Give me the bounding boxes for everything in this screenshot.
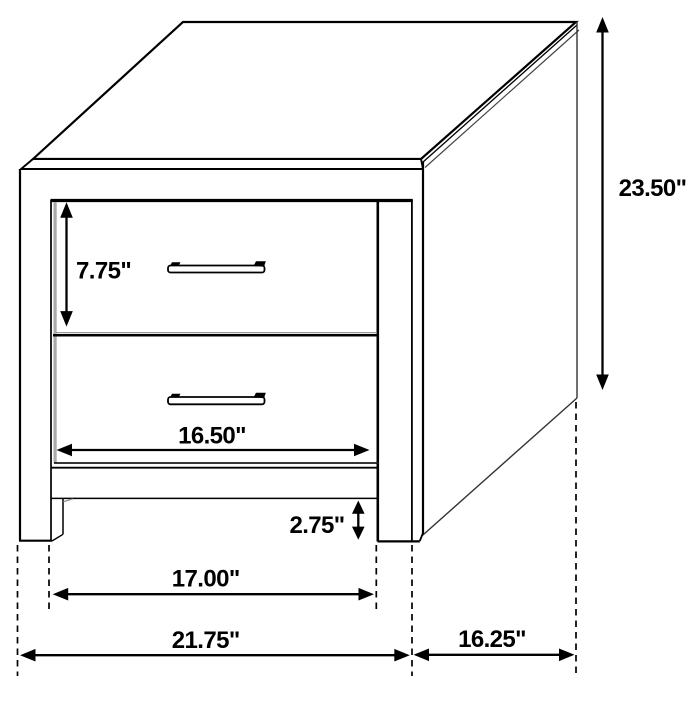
svg-text:23.50": 23.50" [619,175,687,202]
svg-text:16.25": 16.25" [458,626,526,653]
svg-text:21.75": 21.75" [172,627,240,654]
svg-text:7.75": 7.75" [76,258,131,285]
svg-text:2.75": 2.75" [289,512,344,539]
svg-text:17.00": 17.00" [172,566,240,593]
svg-text:16.50": 16.50" [178,423,246,450]
